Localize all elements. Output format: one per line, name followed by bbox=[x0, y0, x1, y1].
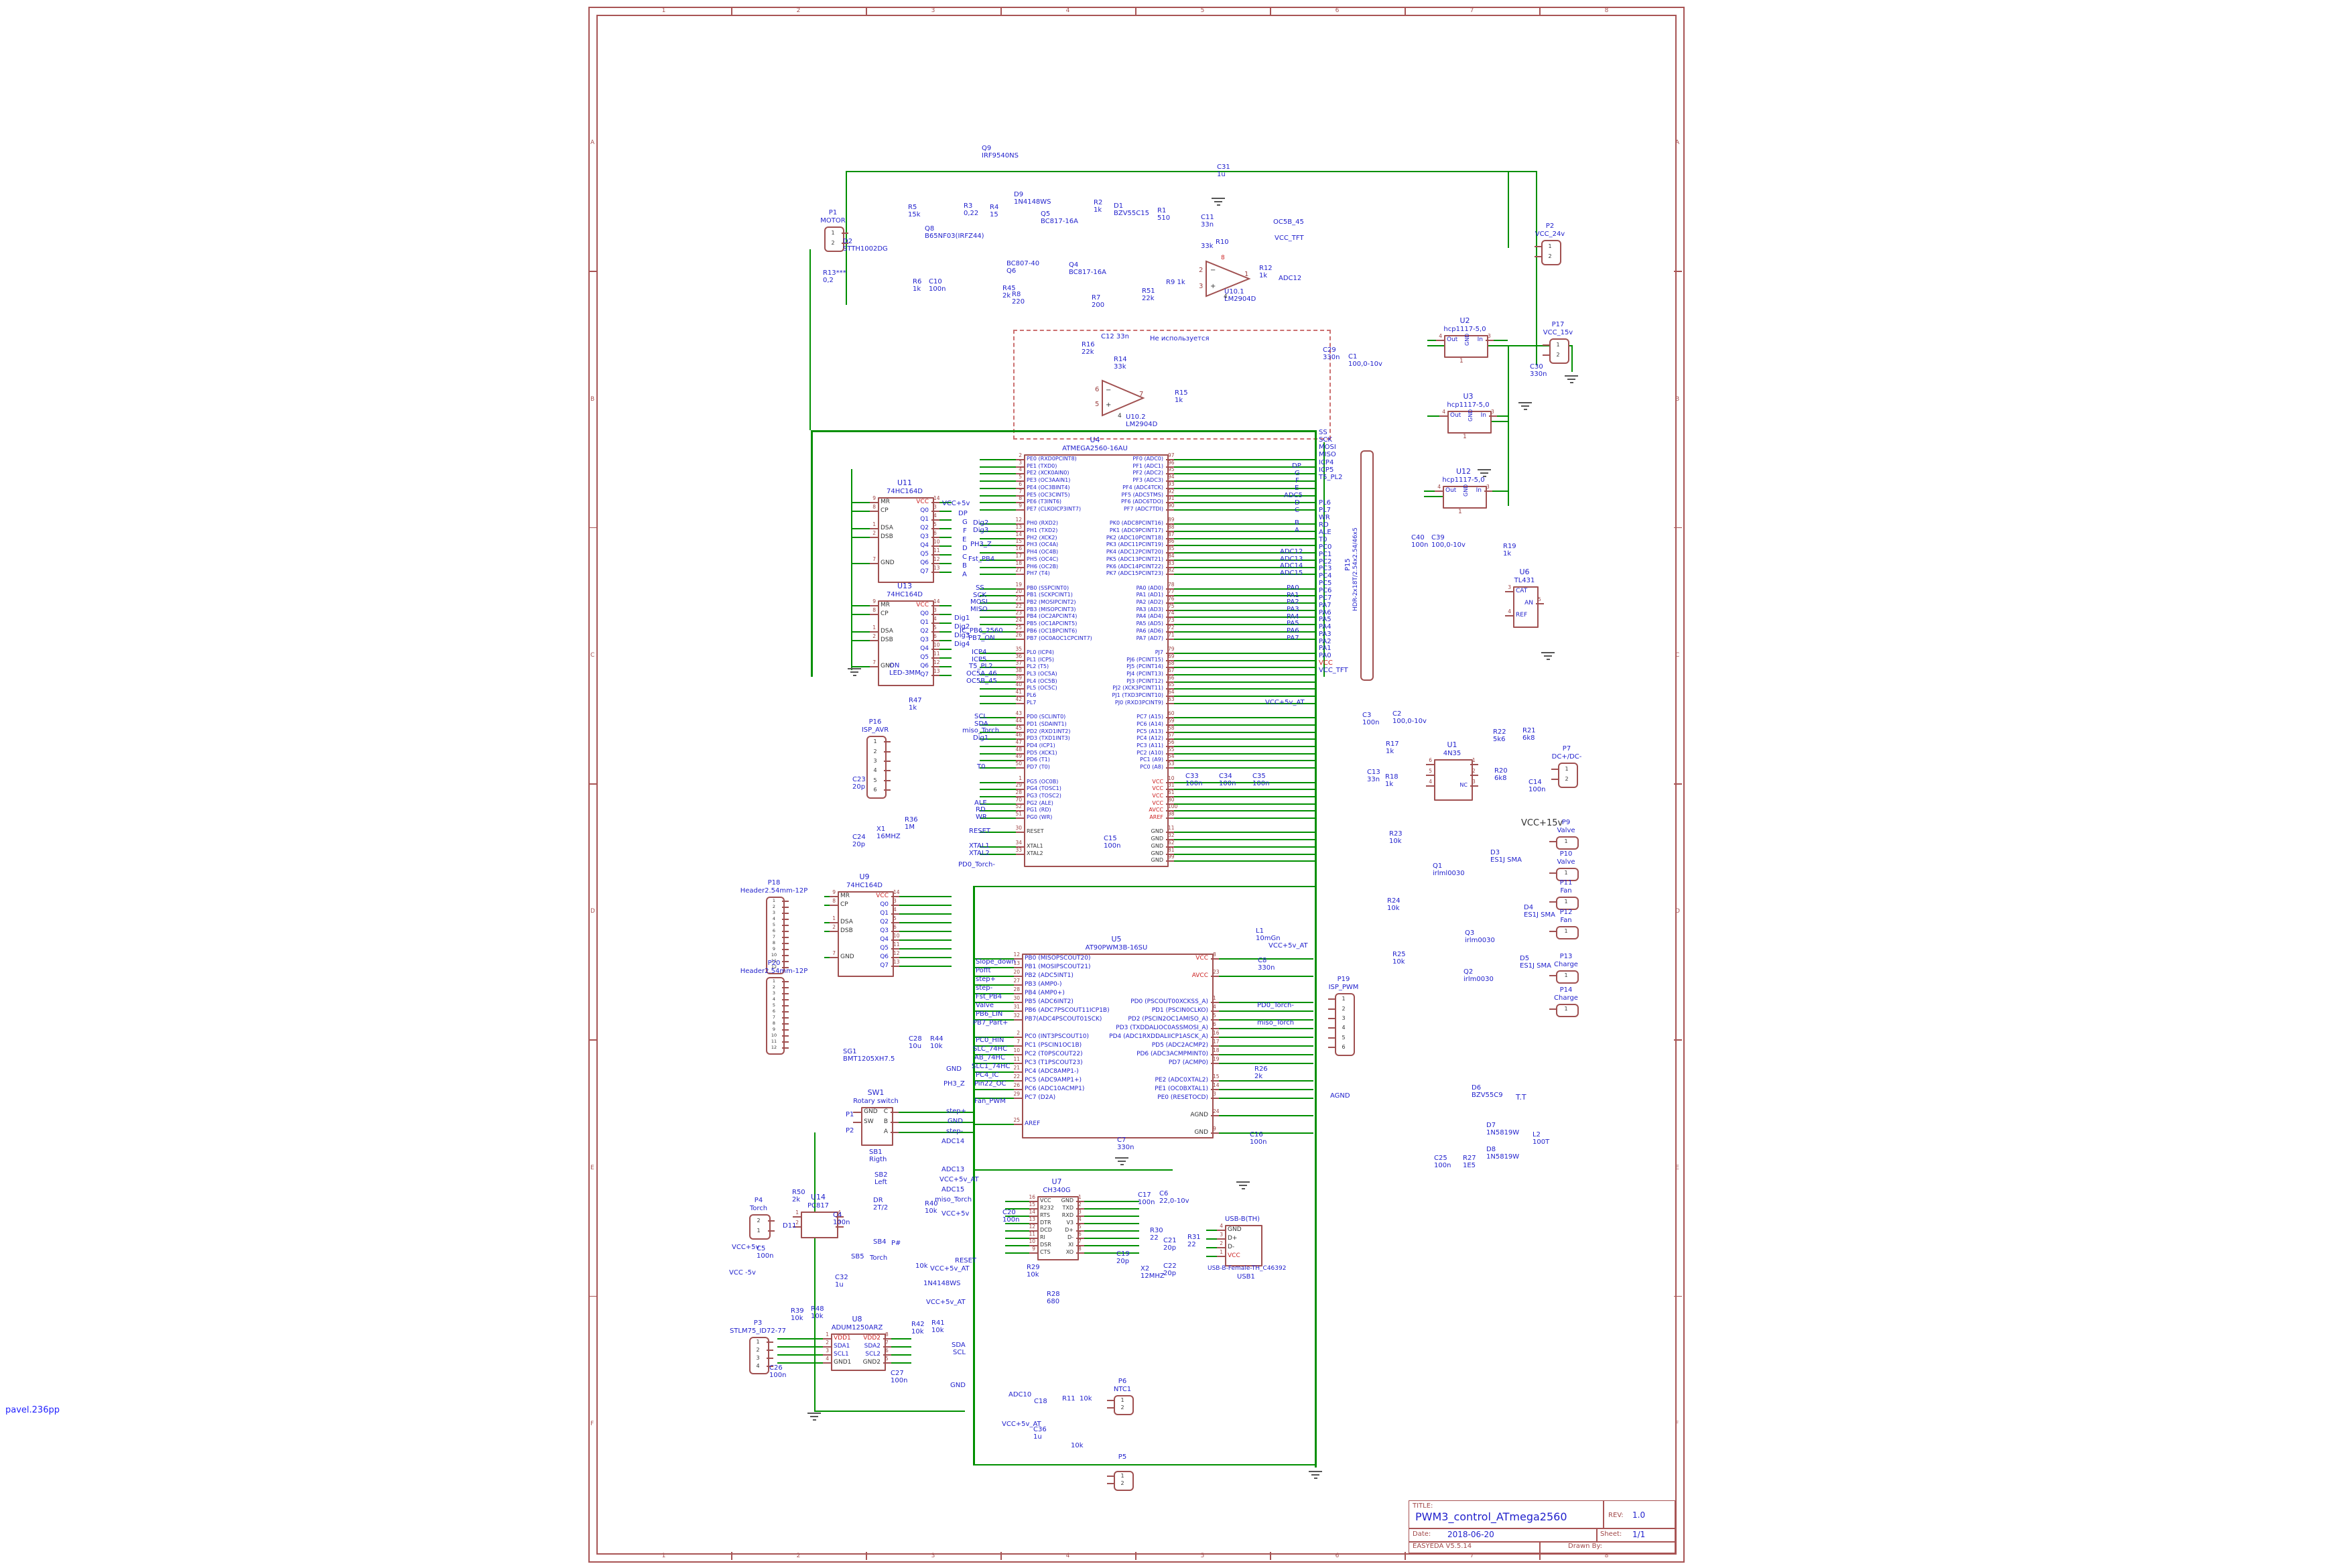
pin-number: 89 bbox=[1168, 517, 1175, 523]
pin-name: PK1 (ADC9PCINT17) bbox=[1110, 528, 1163, 534]
pin-number: 10 bbox=[1029, 1239, 1035, 1244]
pin-name: VCC bbox=[1040, 1198, 1051, 1204]
schematic-label: PD0_Torch- bbox=[958, 861, 995, 868]
wire-segment bbox=[1489, 421, 1508, 422]
schematic-label: C10 100n bbox=[929, 278, 946, 293]
wire-segment bbox=[980, 624, 1016, 625]
schematic-label: Q4 BC817-16A bbox=[1069, 261, 1106, 276]
pin-name: PH2 (XCK2) bbox=[1027, 535, 1057, 541]
schematic-label: C19 20p bbox=[1116, 1250, 1130, 1265]
pin-stub bbox=[1211, 1028, 1219, 1029]
pin-number: 98 bbox=[1168, 811, 1175, 817]
connector-ref: P11 bbox=[1560, 879, 1573, 887]
schematic-label: E bbox=[962, 536, 966, 543]
schematic-label: Fst_PB4 bbox=[976, 993, 1002, 1000]
wire-segment bbox=[973, 886, 975, 1464]
schematic-label: ICP5 bbox=[1319, 466, 1333, 474]
connector-value: Charge bbox=[1554, 961, 1578, 968]
schematic-label: C bbox=[962, 553, 967, 561]
wire-segment bbox=[1084, 1201, 1139, 1202]
pin-number: 51 bbox=[1015, 811, 1022, 817]
pin-name: PA0 (AD0) bbox=[1136, 586, 1163, 592]
pin-number: 69 bbox=[1168, 654, 1175, 659]
schematic-label: R20 6k8 bbox=[1494, 767, 1508, 782]
pin-stub bbox=[891, 931, 899, 932]
pin-name: PB0 (MISOPSCOUT20) bbox=[1025, 955, 1090, 962]
grid-divider bbox=[588, 271, 596, 272]
pin-number: 8 bbox=[1213, 952, 1216, 958]
pin-name: PF7 (ADC7TDI) bbox=[1124, 507, 1163, 513]
pin-number: 84 bbox=[1168, 553, 1175, 559]
wire-segment bbox=[973, 1464, 1315, 1465]
pin-stub bbox=[1016, 639, 1024, 640]
schematic-label: C6 22,0-10v bbox=[1159, 1190, 1189, 1205]
pin-number: 86 bbox=[1168, 539, 1175, 544]
ic-ref: U9 bbox=[859, 873, 869, 881]
pin-stub bbox=[1016, 832, 1024, 833]
pin-name: Q2 bbox=[920, 525, 929, 531]
wire-segment bbox=[980, 574, 1016, 575]
connector-pin-number: 2 bbox=[756, 1348, 759, 1354]
pin-name: RESET bbox=[1027, 829, 1044, 835]
schematic-label: PA5 bbox=[1319, 616, 1331, 623]
pin-name: PH7 (T4) bbox=[1027, 571, 1050, 577]
pin-name: PE2 (ADC0XTAL2) bbox=[1155, 1077, 1208, 1084]
schematic-label: R29 10k bbox=[1027, 1264, 1040, 1279]
ground-symbol bbox=[1524, 409, 1527, 410]
pin-name: PB7 (OC0AOC1CPCINT7) bbox=[1027, 636, 1092, 642]
ground-symbol bbox=[1521, 405, 1529, 407]
pin-name: PD6 (T1) bbox=[1027, 757, 1050, 763]
pin-number: 87 bbox=[1168, 532, 1175, 537]
connector-pin-number: 10 bbox=[771, 953, 777, 958]
pin-name: Q2 bbox=[880, 919, 889, 925]
ic-ref: U11 bbox=[897, 479, 912, 487]
ic-ref: U7 bbox=[1051, 1178, 1061, 1186]
connector-pin-number: 3 bbox=[756, 1356, 759, 1362]
ic-part: ATMEGA2560-16AU bbox=[1062, 445, 1128, 452]
pin-number: 7 bbox=[1078, 1239, 1082, 1244]
pin-stub bbox=[830, 922, 838, 923]
schematic-label: R47 1k bbox=[909, 697, 922, 712]
pin-stub bbox=[1016, 767, 1024, 769]
wire-segment bbox=[1219, 1115, 1313, 1116]
schematic-label: PC0_HIN bbox=[976, 1037, 1004, 1044]
pin-name: Q0 bbox=[880, 901, 889, 908]
schematic-label: ADC13 bbox=[941, 1166, 964, 1173]
schematic-label: SB2 Left bbox=[874, 1171, 888, 1186]
pin-number: 13 bbox=[933, 566, 940, 571]
pin-stub bbox=[1328, 1008, 1335, 1010]
grid-divider bbox=[1000, 7, 1002, 15]
wire-segment bbox=[1219, 1010, 1313, 1012]
wire-segment bbox=[1174, 688, 1315, 690]
schematic-label: G bbox=[1295, 470, 1300, 477]
pin-stub bbox=[1166, 639, 1174, 640]
wire-segment bbox=[1174, 832, 1315, 833]
pin-number: 70 bbox=[1015, 797, 1022, 803]
wire-segment bbox=[1427, 415, 1439, 417]
pin-number: 100 bbox=[1168, 804, 1177, 809]
pin-name: PA2 (AD2) bbox=[1136, 600, 1163, 606]
pin-number: 11 bbox=[1029, 1232, 1035, 1237]
ground-symbol bbox=[1214, 201, 1222, 202]
wire-segment bbox=[1494, 340, 1508, 341]
wire-segment bbox=[1206, 1238, 1217, 1240]
pin-name: AN bbox=[1524, 600, 1533, 606]
wire-segment bbox=[899, 931, 952, 932]
schematic-label: R40 10k bbox=[925, 1200, 938, 1215]
pin-name: D- bbox=[1067, 1235, 1074, 1241]
pin-stub bbox=[1535, 246, 1541, 247]
schematic-label: C3 100n bbox=[1362, 712, 1379, 726]
connector-value: Header2.54mm-12P bbox=[740, 968, 808, 975]
wire-segment bbox=[1174, 473, 1315, 474]
ground-symbol bbox=[813, 1419, 816, 1421]
pin-name: PC4 (ADC8AMP1-) bbox=[1025, 1068, 1079, 1075]
schematic-label: ADC10 bbox=[1009, 1391, 1031, 1398]
wire-segment bbox=[980, 703, 1016, 704]
connector-pin-number: 7 bbox=[773, 935, 775, 939]
pin-number: 2 bbox=[872, 634, 876, 639]
pin-name: Q3 bbox=[920, 533, 929, 540]
schematic-label: XTAL2 bbox=[969, 850, 990, 857]
pin-name: PE2 (XCK0AIN0) bbox=[1027, 470, 1069, 476]
pin-stub bbox=[1211, 1054, 1219, 1055]
pin-number: 53 bbox=[1168, 761, 1175, 767]
pin-name: PG2 (ALE) bbox=[1027, 801, 1053, 807]
ic-ref: U4 bbox=[1090, 436, 1100, 444]
ic-u1[interactable] bbox=[1434, 759, 1473, 801]
ground-symbol bbox=[1239, 1185, 1247, 1186]
not-used-dashed-box bbox=[1013, 330, 1331, 440]
schematic-label: PA4 bbox=[1319, 623, 1331, 631]
wire-segment bbox=[939, 614, 952, 615]
pin-stub bbox=[1217, 1247, 1225, 1248]
ground-symbol bbox=[1311, 1474, 1319, 1476]
pin-number: 30 bbox=[1015, 826, 1022, 831]
pin-number: 11 bbox=[893, 942, 900, 948]
schematic-label: R50 2k bbox=[792, 1189, 805, 1203]
connector-pin-number: 6 bbox=[773, 1009, 775, 1014]
pin-stub bbox=[782, 1047, 789, 1049]
pin-name: Q3 bbox=[920, 637, 929, 643]
pin-stub bbox=[782, 907, 789, 908]
schematic-label: C12 33n bbox=[1101, 333, 1129, 340]
pin-name: SW bbox=[864, 1118, 874, 1125]
pin-number: 2 bbox=[1019, 453, 1022, 458]
pin-stub bbox=[1014, 1054, 1022, 1055]
grid-divider bbox=[1405, 7, 1406, 15]
ground-symbol bbox=[1541, 652, 1555, 653]
schematic-label: + bbox=[1210, 283, 1216, 290]
wire-segment bbox=[851, 640, 870, 641]
pin-number: 21 bbox=[1015, 596, 1022, 602]
wire-segment bbox=[777, 1362, 823, 1364]
pin-name: REF bbox=[1516, 612, 1527, 618]
pin-name: XTAL2 bbox=[1027, 851, 1043, 857]
schematic-label: Не используется bbox=[1150, 335, 1210, 342]
ic-part: 4N35 bbox=[1443, 750, 1461, 757]
connector-value: STLM75_ID72-77 bbox=[730, 1327, 786, 1335]
schematic-label: 8 bbox=[1221, 255, 1225, 261]
connector-ref: P18 bbox=[768, 879, 781, 887]
connector-pin-number: 1 bbox=[1564, 1006, 1567, 1012]
ground-symbol bbox=[1544, 655, 1552, 657]
pin-number: 5 bbox=[1019, 474, 1022, 480]
ic-part: 74HC164D bbox=[846, 882, 883, 889]
pin-name: DTR bbox=[1040, 1220, 1051, 1226]
schematic-label: D5 ES1J SMA bbox=[1520, 955, 1551, 970]
connector-pin-number: 8 bbox=[773, 941, 775, 945]
pin-name: PE0 (RXD0PCINT8) bbox=[1027, 456, 1077, 462]
wire-segment bbox=[1084, 1208, 1139, 1210]
schematic-label: SDA bbox=[952, 1342, 966, 1349]
connector-pin-number: 1 bbox=[1564, 929, 1567, 935]
pin-number: 4 bbox=[1213, 1004, 1216, 1010]
wire-segment bbox=[777, 1354, 823, 1356]
pin-name: PC2 (T0PSCOUT22) bbox=[1025, 1051, 1083, 1057]
schematic-label: R27 1E5 bbox=[1463, 1155, 1476, 1169]
pin-stub bbox=[793, 1216, 801, 1218]
schematic-label: C17 100n bbox=[1138, 1191, 1155, 1206]
pin-number: 16 bbox=[1015, 546, 1022, 551]
grid-divider bbox=[1405, 1552, 1406, 1560]
wire-segment bbox=[899, 966, 952, 967]
wire-segment bbox=[939, 511, 952, 512]
schematic-label: C1 100,0-10v bbox=[1348, 353, 1382, 368]
pin-stub bbox=[870, 631, 878, 633]
pin-number: 3 bbox=[1078, 1210, 1082, 1215]
schematic-label: Pofft bbox=[976, 967, 991, 974]
pin-name: PK2 (ADC10PCINT18) bbox=[1106, 535, 1163, 541]
schematic-label: SS bbox=[976, 584, 984, 592]
pin-number: 96 bbox=[1168, 460, 1175, 466]
pin-number: 58 bbox=[1168, 726, 1175, 731]
pin-number: 30 bbox=[1013, 996, 1020, 1001]
pin-number: 8 bbox=[885, 1332, 889, 1337]
pin-number: 83 bbox=[1168, 561, 1175, 566]
pin-number: 6 bbox=[1213, 1022, 1216, 1027]
schematic-label: B bbox=[962, 562, 967, 570]
pin-name: PD0 (SCLINT0) bbox=[1027, 714, 1065, 720]
pin-stub bbox=[1211, 1019, 1219, 1021]
schematic-label: C31 1u bbox=[1217, 164, 1230, 178]
wire-segment bbox=[980, 480, 1016, 482]
schematic-label: C23 20p bbox=[852, 776, 866, 791]
pin-name: PJ5 (PCINT14) bbox=[1126, 664, 1163, 670]
pin-number: 81 bbox=[1168, 848, 1175, 853]
pin-stub bbox=[1217, 1238, 1225, 1240]
pin-number: 3 bbox=[826, 1348, 829, 1354]
pin-stub bbox=[1470, 764, 1478, 765]
pin-name: PJ7 bbox=[1155, 650, 1163, 656]
pin-name: GND bbox=[1194, 1129, 1208, 1136]
pin-number: 3 bbox=[1508, 585, 1511, 590]
pin-stub bbox=[891, 1132, 899, 1133]
pin-name: Q4 bbox=[920, 542, 929, 549]
schematic-label: PC4 bbox=[1319, 572, 1331, 580]
pin-name: PJ2 (XCK3PCINT11) bbox=[1112, 685, 1163, 692]
wire-segment bbox=[811, 430, 813, 677]
pin-name: GND bbox=[1151, 851, 1163, 857]
pin-name: Q5 bbox=[920, 551, 929, 558]
schematic-label: 6 bbox=[1095, 386, 1099, 393]
pin-name: PH6 (OC2B) bbox=[1027, 564, 1058, 570]
schematic-label: 1 bbox=[1463, 434, 1467, 440]
pin-number: 5 bbox=[933, 625, 937, 631]
pin-name: RI bbox=[1040, 1235, 1045, 1241]
pin-name: GND bbox=[1151, 829, 1163, 835]
schematic-label: MISO bbox=[970, 606, 988, 613]
wire-segment bbox=[1174, 674, 1315, 675]
pin-name: PF2 (ADC2) bbox=[1132, 470, 1163, 476]
connector-p15[interactable] bbox=[1360, 450, 1374, 681]
pin-name: PF4 (ADC4TCK) bbox=[1122, 485, 1163, 491]
wire-segment bbox=[1174, 738, 1315, 740]
connector-pin-number: 1 bbox=[1564, 870, 1567, 876]
pin-name: Q4 bbox=[920, 645, 929, 652]
wire-segment bbox=[1427, 340, 1436, 341]
pin-number: 12 bbox=[893, 951, 900, 956]
wire-segment bbox=[1174, 753, 1315, 755]
pin-stub bbox=[884, 741, 891, 742]
pin-name: PE1 (OC0BXTAL1) bbox=[1155, 1086, 1208, 1092]
schematic-label: F bbox=[963, 527, 967, 535]
pin-number: 3 bbox=[933, 608, 937, 613]
schematic-label: Dig1 bbox=[954, 614, 970, 622]
pin-name: B bbox=[884, 1118, 888, 1125]
schematic-label: USB-B-Female-TH_C46392 bbox=[1208, 1265, 1286, 1272]
pin-stub bbox=[1211, 1115, 1219, 1116]
grid-col-label: 1 bbox=[662, 7, 666, 14]
schematic-label: C24 20p bbox=[852, 834, 866, 848]
pin-number: 16 bbox=[1213, 1031, 1220, 1036]
pin-name: Q3 bbox=[880, 927, 889, 934]
schematic-label: PL6 bbox=[1319, 499, 1331, 507]
pin-name: RTS bbox=[1040, 1213, 1050, 1219]
schematic-label: PB7_ON bbox=[968, 635, 995, 642]
pin-name: PB2 (MOSIPCINT2) bbox=[1027, 600, 1076, 606]
connector-ref: P7 bbox=[1563, 745, 1571, 753]
wire-segment bbox=[1174, 846, 1315, 848]
pin-name: R232 bbox=[1040, 1205, 1054, 1212]
wire-segment bbox=[851, 528, 870, 529]
pin-number: 15 bbox=[1213, 1074, 1220, 1080]
schematic-label: ADC14 bbox=[941, 1138, 964, 1145]
grid-row-label: B bbox=[590, 396, 594, 403]
pin-name: PD2 (RXD1INT2) bbox=[1027, 729, 1070, 735]
schematic-label: ADC5 bbox=[1284, 492, 1303, 499]
pin-number: 52 bbox=[1015, 804, 1022, 809]
wire-segment bbox=[899, 948, 952, 950]
pin-stub bbox=[1470, 775, 1478, 776]
pin-number: 6 bbox=[1019, 482, 1022, 487]
pin-stub bbox=[768, 1230, 775, 1232]
pin-name: PK4 (ADC12PCINT20) bbox=[1106, 549, 1163, 556]
schematic-label: PC3 bbox=[1319, 565, 1331, 572]
wire-segment bbox=[980, 495, 1016, 497]
wire-segment bbox=[939, 554, 952, 556]
schematic-label: AB_74HC bbox=[974, 1054, 1005, 1061]
pin-number: 47 bbox=[1015, 740, 1022, 745]
connector-value: ISP_AVR bbox=[862, 726, 889, 734]
ground-symbol bbox=[1217, 204, 1220, 206]
wire-segment bbox=[851, 537, 870, 538]
wire-segment bbox=[1174, 760, 1315, 761]
schematic-label: VCC_TFT bbox=[1275, 235, 1304, 242]
schematic-label: 4 bbox=[1224, 293, 1228, 300]
connector-pin-number: 5 bbox=[1342, 1035, 1345, 1041]
pin-number: 60 bbox=[1168, 711, 1175, 716]
pin-name: Q7 bbox=[920, 671, 929, 678]
wire-segment bbox=[980, 746, 1016, 747]
pin-number: 3 bbox=[933, 505, 937, 510]
ic-part: USB-B(TH) bbox=[1225, 1216, 1260, 1223]
pin-stub bbox=[767, 1342, 773, 1343]
pin-name: AVCC bbox=[1149, 807, 1163, 813]
grid-divider bbox=[866, 1552, 867, 1560]
pin-name: GND bbox=[1061, 1198, 1074, 1204]
connector-pin-number: 9 bbox=[773, 947, 775, 952]
schematic-label: B bbox=[1295, 519, 1299, 527]
wire-segment bbox=[1174, 839, 1315, 840]
pin-name: PL3 (OC5A) bbox=[1027, 671, 1057, 677]
wire-segment bbox=[1174, 818, 1315, 819]
schematic-label: VCC -5v bbox=[729, 1269, 756, 1277]
wire-segment bbox=[814, 1411, 965, 1412]
pin-name: PG4 (TOSC1) bbox=[1027, 786, 1061, 792]
pin-name: PE5 (OC3CINT5) bbox=[1027, 493, 1070, 499]
pin-number: 6 bbox=[1429, 758, 1432, 763]
schematic-label: Fst_PB4 bbox=[968, 556, 994, 563]
wire-segment bbox=[1174, 502, 1315, 503]
connector-pin-number: 1 bbox=[1564, 839, 1567, 845]
wire-segment bbox=[1492, 491, 1508, 492]
ground-symbol bbox=[1242, 1188, 1245, 1189]
pin-number: 15 bbox=[1015, 539, 1022, 544]
pin-number: 8 bbox=[1019, 496, 1022, 501]
schematic-label: DP bbox=[958, 510, 968, 517]
pin-name: Q1 bbox=[920, 516, 929, 523]
ground-symbol bbox=[1118, 1161, 1126, 1162]
pin-stub bbox=[782, 937, 789, 938]
pin-number: 28 bbox=[1015, 790, 1022, 795]
connector-pin-number: 2 bbox=[757, 1218, 760, 1224]
pin-name: V3 bbox=[1066, 1220, 1074, 1226]
pin-stub bbox=[1211, 1098, 1219, 1099]
wire-segment bbox=[980, 588, 1016, 590]
pin-name: CP bbox=[840, 901, 848, 908]
schematic-label: PB7_Part+ bbox=[973, 1019, 1008, 1027]
connector-pin-number: 2 bbox=[773, 905, 775, 909]
pin-stub bbox=[782, 955, 789, 956]
schematic-label: ADC12 bbox=[1280, 548, 1303, 556]
pin-number: 90 bbox=[1168, 503, 1175, 509]
pin-name: RXD bbox=[1062, 1213, 1074, 1219]
schematic-label: R15 1k bbox=[1175, 389, 1188, 404]
wire-segment bbox=[824, 896, 830, 897]
pin-number: 14 bbox=[1015, 532, 1022, 537]
pin-name: AGND bbox=[1190, 1112, 1208, 1118]
pin-stub bbox=[782, 1023, 789, 1025]
schematic-label: VCC bbox=[1319, 659, 1333, 667]
pin-number: 13 bbox=[1015, 525, 1022, 530]
pin-name: PB5 (OC1APCINT5) bbox=[1027, 621, 1077, 627]
schematic-label: P# bbox=[891, 1240, 901, 1247]
wire-segment bbox=[1571, 345, 1573, 372]
wire-segment bbox=[939, 572, 952, 573]
